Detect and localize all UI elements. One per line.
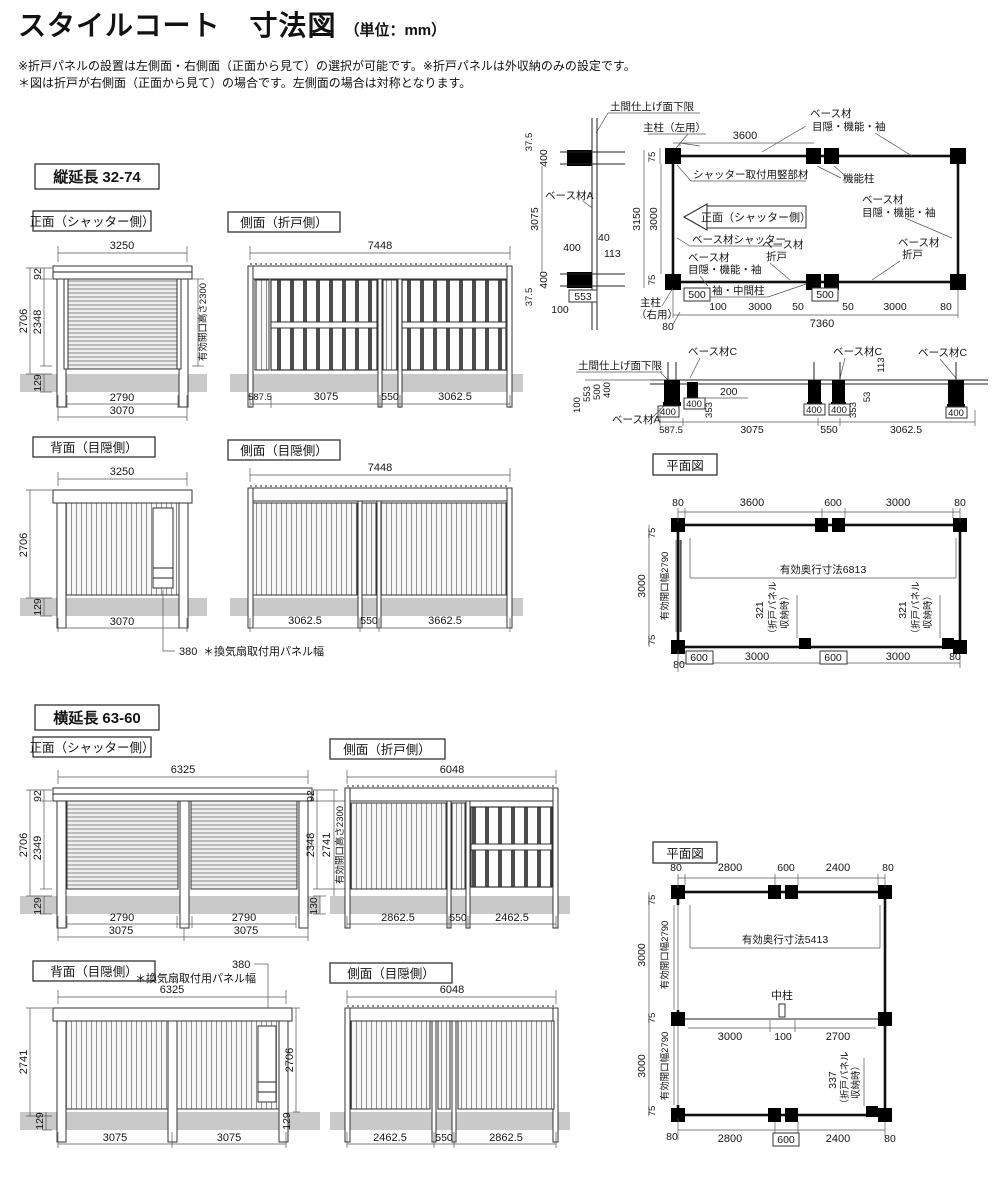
plan-top: 平面図 80 3600 600 3000 80 75 3000 75 有効開口幅… [636, 454, 967, 672]
dim: 3000 [718, 1031, 742, 1043]
dim: 2349 [32, 836, 44, 860]
s1-side-fold-title: 側面（折戸側） [240, 215, 328, 230]
s2-back-view: 背面（目隠側） 380 ＊換気扇取付用パネル幅 6325 2741 129 27… [18, 959, 320, 1148]
pillar-left-label: 主柱（左用） [643, 121, 706, 134]
dim: 6048 [440, 984, 464, 996]
dim: 2400 [826, 1133, 850, 1145]
dim: 600 [824, 652, 842, 664]
svg-text:（折戸パネル: （折戸パネル [839, 1051, 851, 1109]
dim: 353 [848, 402, 859, 418]
dim: 2706 [284, 1048, 296, 1072]
s2-side-hide-title: 側面（目隠側） [347, 967, 435, 981]
doma-label: 土間仕上げ面下限 [578, 359, 662, 372]
dim: 500 [688, 289, 706, 301]
post [378, 279, 382, 407]
dim: 2348 [32, 310, 44, 334]
pillar [878, 1108, 892, 1122]
dim: 587.5 [659, 425, 683, 436]
svg-text:（折戸パネル: （折戸パネル [910, 581, 922, 639]
dim: 3062.5 [288, 615, 322, 627]
pillar [671, 1012, 685, 1026]
dim: 100 [709, 301, 727, 313]
dim: 2706 [18, 833, 30, 857]
dim: 50 [842, 301, 854, 313]
base-hide3-label: ベース材 [862, 193, 904, 206]
dim: 400 [806, 405, 822, 416]
post [447, 801, 451, 928]
dim: 2706 [18, 309, 30, 333]
center-post [779, 1004, 785, 1017]
dim: 3000 [636, 574, 648, 598]
dim: 380 [179, 646, 197, 658]
dim: 3250 [110, 466, 134, 478]
hide-panel [452, 803, 465, 889]
dim: 53 [862, 392, 873, 403]
dim: 129 [34, 1112, 46, 1130]
hide-panel [458, 1021, 554, 1109]
svg-text:337: 337 [827, 1071, 839, 1089]
dim: 75 [647, 635, 658, 646]
dim: 400 [686, 399, 702, 410]
baseA-label: ベース材A [612, 413, 660, 426]
dim: 3075 [103, 1132, 127, 1144]
dim: 75 [647, 895, 658, 906]
fold-note: 321 （折戸パネル 収納時） [754, 581, 791, 639]
s2-front-title: 正面（シャッター側） [29, 741, 154, 755]
dim: 550 [381, 391, 399, 403]
vent-note: ＊換気扇取付用パネル幅 [203, 644, 324, 658]
dim: 2800 [718, 862, 742, 874]
base-hide2-label: ベース材 [688, 251, 730, 264]
roof-beam [345, 1008, 558, 1021]
s1-side-fold-view: 側面（折戸側） 7448 587.5 3075 550 3062.5 [228, 212, 523, 408]
s1-side-hide-view: 側面（目隠側） 7448 3062.5 550 3662.5 [228, 440, 523, 632]
dim: 550 [435, 1132, 453, 1144]
dimension-drawing: 縦延長 32-74 正面（シャッター側） 3250 92 2706 2348 1… [0, 0, 1000, 1179]
depth-dim: 有効奥行寸法5413 [742, 933, 829, 946]
pillar [832, 518, 845, 532]
dim: 80 [954, 497, 966, 509]
hide-panel [383, 280, 397, 370]
pillar [824, 148, 839, 164]
dim: 400 [538, 149, 550, 167]
dim: 3600 [740, 497, 764, 509]
dim: 129 [32, 598, 44, 616]
vent-note: ＊換気扇取付用パネル幅 [135, 971, 256, 985]
dim: 2741 [18, 1050, 30, 1074]
ground [330, 1112, 570, 1130]
dim: 80 [670, 862, 682, 874]
s2-front-view: 正面（シャッター側） 6325 92 2706 2349 129 92 2348… [18, 737, 350, 941]
dim: 100 [774, 1031, 792, 1043]
pillar [950, 274, 966, 290]
base-fold2-label2: 折戸 [902, 248, 923, 261]
svg-text:収納時）: 収納時） [850, 1061, 862, 1099]
baseC-label: ベース材C [688, 345, 737, 358]
shutter-panel [67, 279, 178, 369]
post [432, 1021, 436, 1142]
base-hide-label: ベース材 [810, 107, 852, 120]
fold-panel-mark [866, 1106, 878, 1117]
dim: 2462.5 [373, 1132, 407, 1144]
dim: 80 [672, 497, 684, 509]
hide-panel [438, 1021, 450, 1109]
shutter-panel [67, 801, 178, 889]
dim: 80 [949, 651, 961, 663]
shutter-member-label: シャッター取付用竪部材 [693, 168, 809, 181]
dim: 92 [305, 790, 317, 802]
post [553, 788, 558, 928]
base-hide3-label2: 目隠・機能・袖 [862, 206, 936, 219]
anchor-posts [663, 362, 965, 408]
hide-panel [351, 1021, 430, 1109]
post [180, 790, 189, 928]
dim: 100 [551, 304, 569, 316]
svg-text:収納時）: 収納時） [779, 591, 791, 629]
dim: 129 [32, 897, 44, 915]
dim: 2700 [826, 1031, 850, 1043]
s1-back-title: 背面（目隠側） [50, 441, 138, 455]
dim: 3000 [748, 301, 772, 313]
vent-panel [153, 508, 173, 588]
roof-beam [248, 488, 512, 501]
post [452, 1021, 456, 1142]
svg-text:321: 321 [897, 601, 909, 619]
dim: 37.5 [524, 288, 535, 307]
post [507, 266, 512, 407]
dim: 2348 [305, 833, 317, 857]
dim: 75 [647, 275, 658, 286]
dim: 3000 [886, 497, 910, 509]
pillar [878, 1012, 892, 1026]
dim: 3070 [110, 616, 134, 628]
baseA-label: ベース材A [545, 189, 593, 202]
dim: 3600 [733, 130, 757, 142]
eff-width: 有効開口幅2790 [659, 552, 671, 621]
dim: 75 [647, 1106, 658, 1117]
dim: 500 [816, 289, 834, 301]
post [377, 501, 381, 628]
hide-siding [66, 1021, 168, 1109]
back-beam [53, 1008, 292, 1021]
post [248, 488, 253, 628]
post [507, 488, 512, 628]
dim: 2800 [718, 1133, 742, 1145]
s2-side-hide-view: 側面（目隠側） 6048 2462.5 550 2862.5 [330, 963, 570, 1148]
dim: 80 [940, 301, 952, 313]
post [398, 279, 402, 407]
eff-width: 有効開口幅2790 [659, 1032, 671, 1101]
pillar [785, 1108, 798, 1122]
dim: 3662.5 [428, 615, 462, 627]
detail-base-section: 土間仕上げ面下限 ベース材C ベース材C ベース材C 100 553 500 4… [572, 345, 988, 436]
svg-text:（折戸パネル: （折戸パネル [767, 581, 779, 639]
plan-bottom: 平面図 80 2800 600 2400 80 75 3000 有効開口幅279… [636, 842, 896, 1146]
post [248, 266, 253, 407]
plan-bottom-title: 平面図 [666, 847, 704, 861]
dim: 40 [598, 232, 610, 244]
dim: 3075 [217, 1132, 241, 1144]
dim: 129 [281, 1112, 293, 1130]
dim: 3075 [109, 925, 133, 937]
s1-front-view: 正面（シャッター側） 3250 92 2706 2348 129 有効開口高さ2… [18, 211, 209, 421]
baseC-label: ベース材C [833, 345, 882, 358]
roof-beam [345, 788, 558, 801]
dim: 400 [538, 271, 550, 289]
dim: 3075 [740, 424, 764, 436]
baseC-label: ベース材C [918, 346, 967, 359]
dim: 2741 [321, 833, 333, 857]
hide-panel [362, 503, 376, 595]
post [57, 1010, 66, 1142]
fold-panel-mark [799, 638, 811, 649]
s2-side-fold-view: 側面（折戸側） 6048 2862.5 550 2462.5 [330, 739, 570, 928]
dim: 6325 [160, 984, 184, 996]
dim: 3000 [745, 651, 769, 663]
pillar-right-label: 主柱 [640, 296, 661, 309]
dim: 3062.5 [890, 424, 922, 436]
plan-top-right: 主柱（左用） 3600 ベース材 目隠・機能・袖 機能柱 75 3150 300… [631, 107, 966, 333]
dim: 80 [662, 321, 674, 333]
dim: 3000 [886, 651, 910, 663]
svg-text:321: 321 [754, 601, 766, 619]
dim: 2790 [110, 392, 134, 404]
dim: 80 [666, 1131, 678, 1143]
pillar [665, 148, 681, 164]
base-fold-label2: 折戸 [766, 250, 787, 263]
hide-panel [351, 803, 446, 889]
fold-note: 337 （折戸パネル 収納時） [827, 1051, 864, 1109]
dim: 7448 [368, 462, 392, 474]
dim: 2862.5 [489, 1132, 523, 1144]
dim: 600 [777, 1134, 795, 1146]
shutter-panel [191, 801, 297, 889]
dim: 6325 [171, 764, 195, 776]
dim: 3070 [110, 405, 134, 417]
dim: 129 [32, 374, 44, 392]
hide-panel [381, 503, 506, 595]
section1-tag: 縦延長 32-74 [35, 164, 159, 189]
post [299, 790, 308, 928]
dim: 80 [673, 659, 685, 671]
dim: 3075 [314, 391, 338, 403]
plan-top-title: 平面図 [666, 459, 704, 473]
kinou-label: 機能柱 [843, 172, 875, 185]
dim: 80 [882, 862, 894, 874]
ground [230, 374, 523, 392]
dim: 600 [824, 497, 842, 509]
dim: 92 [32, 790, 44, 802]
front-arrow-label: 正面（シャッター側） [701, 211, 811, 224]
post [466, 801, 470, 928]
s2-back-title: 背面（目隠側） [50, 965, 138, 979]
vent-panel [258, 1026, 276, 1102]
dim: 2462.5 [495, 912, 529, 924]
dim: 3000 [636, 943, 648, 967]
dim: 400 [948, 408, 964, 419]
dim: 有効開口高さ2300 [334, 806, 346, 884]
s1-side-hide-title: 側面（目隠側） [240, 444, 328, 458]
roof-beam [248, 266, 512, 279]
dim: 3000 [636, 1054, 648, 1078]
dim: 200 [720, 386, 738, 398]
dim: 75 [647, 528, 658, 539]
fold-note: 321 （折戸パネル 収納時） [897, 581, 934, 639]
base-hide-label2: 目隠・機能・袖 [812, 120, 886, 133]
dim: 3075 [529, 207, 541, 231]
dim: 550 [820, 424, 838, 436]
pillar [815, 518, 828, 532]
fold-panel-mark [942, 638, 954, 649]
pillar [665, 274, 681, 290]
dim: 75 [647, 1013, 658, 1024]
dim: 550 [449, 912, 467, 924]
dim: 2400 [826, 862, 850, 874]
dim: 7360 [810, 318, 834, 330]
dim: 75 [647, 152, 658, 163]
dim: 80 [884, 1133, 896, 1145]
s2-side-fold-title: 側面（折戸側） [343, 742, 431, 757]
base-fold2-label: ベース材 [898, 236, 940, 249]
hide-panel [253, 503, 357, 595]
dim: 130 [308, 897, 320, 915]
dim: 113 [604, 248, 621, 260]
post [168, 1010, 177, 1142]
dim: 3075 [234, 925, 258, 937]
dim: 553 [574, 291, 592, 303]
dim: 550 [360, 615, 378, 627]
post [345, 1008, 350, 1142]
dim: 3250 [110, 240, 134, 252]
section2-tag: 横延長 63-60 [35, 705, 159, 730]
dim: 3000 [648, 207, 660, 231]
post [57, 492, 66, 628]
section1-tag-label: 縦延長 32-74 [53, 168, 141, 186]
pillar [950, 148, 966, 164]
dim: 有効開口高さ2300 [197, 283, 209, 361]
dim: 7448 [368, 240, 392, 252]
dim: 2706 [18, 533, 30, 557]
dim: 2790 [110, 912, 134, 924]
pillar [768, 885, 781, 899]
dim: 353 [704, 402, 715, 418]
dim: 587.5 [248, 392, 272, 403]
back-beam [53, 490, 192, 503]
dim: 37.5 [524, 133, 535, 152]
svg-text:収納時）: 収納時） [922, 591, 934, 629]
dim: 113 [876, 357, 887, 372]
dim: 2790 [232, 912, 256, 924]
dim: 50 [792, 301, 804, 313]
s1-front-title: 正面（シャッター側） [29, 215, 154, 229]
pillar-right-label2: （右用） [636, 308, 678, 321]
dim: 92 [32, 268, 44, 280]
dim: 600 [777, 862, 795, 874]
dim: 6048 [440, 764, 464, 776]
dim: 400 [602, 382, 613, 398]
pillar [806, 148, 821, 164]
base-fold-label: ベース材 [762, 238, 804, 251]
dim: 400 [831, 405, 847, 416]
dim: 600 [690, 652, 708, 664]
sode-label: 袖・中間柱 [712, 284, 765, 297]
dim: 3150 [631, 207, 643, 231]
dim: 2862.5 [381, 912, 415, 924]
section2-tag-label: 横延長 63-60 [53, 709, 141, 727]
hide-panel [255, 280, 269, 370]
eff-width: 有効開口幅2790 [659, 921, 671, 990]
pillar [768, 1108, 781, 1122]
pillar [785, 885, 798, 899]
post [345, 788, 350, 928]
post [179, 492, 188, 628]
depth-dim: 有効奥行寸法6813 [780, 563, 867, 576]
dim: 3062.5 [438, 391, 472, 403]
base-hide2-label2: 目隠・機能・袖 [688, 263, 762, 276]
dim: 3000 [883, 301, 907, 313]
dim: 400 [563, 242, 581, 254]
post [358, 501, 362, 628]
naka-label: 中柱 [771, 988, 793, 1002]
dim: 380 [232, 959, 250, 971]
doma-label: 土間仕上げ面下限 [610, 100, 694, 113]
post [57, 790, 66, 928]
dim: 400 [660, 407, 676, 418]
